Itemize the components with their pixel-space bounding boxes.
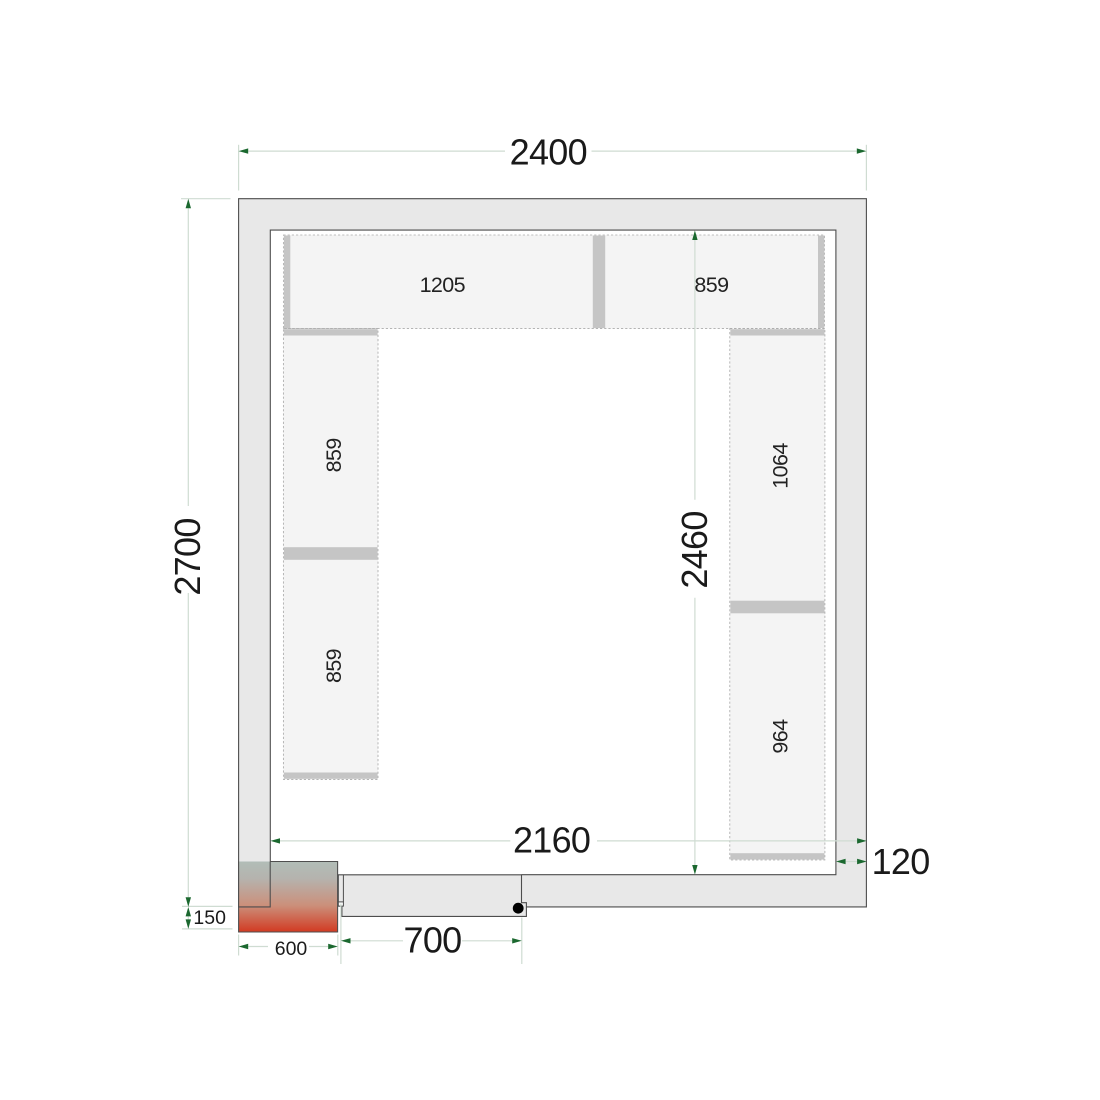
svg-text:120: 120 bbox=[872, 841, 930, 882]
svg-text:1205: 1205 bbox=[420, 273, 466, 297]
svg-text:150: 150 bbox=[193, 907, 226, 929]
svg-text:964: 964 bbox=[769, 719, 793, 754]
svg-text:2400: 2400 bbox=[510, 132, 587, 173]
svg-text:2700: 2700 bbox=[167, 518, 208, 595]
svg-text:859: 859 bbox=[694, 273, 728, 297]
svg-text:2460: 2460 bbox=[674, 511, 715, 588]
svg-text:859: 859 bbox=[322, 438, 346, 472]
svg-text:859: 859 bbox=[322, 649, 346, 683]
svg-text:600: 600 bbox=[275, 938, 308, 960]
svg-text:1064: 1064 bbox=[768, 443, 792, 489]
svg-text:2160: 2160 bbox=[513, 820, 590, 861]
svg-text:700: 700 bbox=[404, 920, 462, 961]
